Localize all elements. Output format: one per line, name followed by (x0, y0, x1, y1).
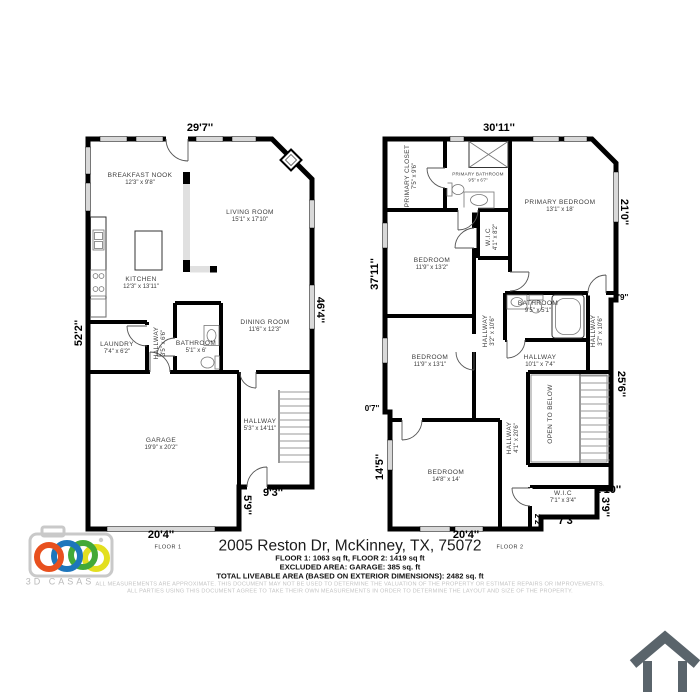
room-label-wic-top: W.I.C 4'1" x 8'2" (485, 224, 501, 250)
floor1-dim-right: 46'4'' (312, 297, 326, 323)
room-label-primary-bathroom: PRIMARY BATHROOM 9'5" x 6'7" (452, 171, 503, 182)
room-size: 3'7" x 10'6" (598, 315, 606, 348)
room-name: W.I.C (485, 224, 493, 250)
floor2-dim-top: 30'11'' (483, 122, 515, 136)
dim-text: 20'4'' (148, 529, 174, 543)
room-size: 4'1" x 20'6" (514, 422, 522, 455)
room-label-laundry: LAUNDRY 7'4" x 6'2" (100, 341, 134, 357)
floor2-dim-right-jog: 0'9'' (614, 293, 629, 303)
floor2-dim-wic-bottom: 7'3'' (558, 515, 578, 529)
floor1-caption: FLOOR 1 (154, 545, 181, 552)
floor2-caption: FLOOR 2 (496, 545, 523, 552)
room-label-primary-closet: PRIMARY CLOSET 7'5" x 9'6" (404, 145, 420, 208)
room-label-bathroom-1: BATHROOM 5'1" x 6' (176, 340, 216, 356)
room-name: HALLWAY (506, 422, 514, 455)
room-name: PRIMARY BEDROOM (525, 199, 596, 207)
room-label-open-to-below: OPEN TO BELOW (547, 384, 555, 444)
room-size: 7'1" x 3'4" (550, 498, 576, 506)
room-size: 11'9" x 13'1" (412, 362, 448, 370)
floor1-dim-left: 52'2'' (73, 320, 87, 346)
room-name: BATHROOM (518, 300, 558, 308)
dim-text: 14'5'' (374, 454, 388, 480)
room-size: 9'5" x 5'1" (518, 308, 558, 316)
room-name: BEDROOM (428, 469, 464, 477)
room-name: HALLWAY (590, 315, 598, 348)
floor1-dim-hall-bottom: 9'3'' (263, 487, 283, 501)
room-size: 13'1" x 18' (525, 207, 596, 215)
room-label-hallway-lower: HALLWAY 4'1" x 20'6" (506, 422, 522, 455)
floor2-dim-right-mid: 25'6'' (613, 371, 627, 397)
room-name: LIVING ROOM (226, 209, 274, 217)
dim-text: 52'2'' (73, 320, 87, 346)
logo-camera-icon (30, 527, 112, 576)
room-name: BREAKFAST NOOK (108, 172, 173, 180)
room-name: KITCHEN (123, 276, 159, 284)
room-name: DINING ROOM (240, 319, 289, 327)
floor1-dim-step: 5'9'' (239, 495, 253, 515)
floor2-dim-left-bottom: 14'5'' (374, 454, 388, 480)
room-name: BATHROOM (176, 340, 216, 348)
floorplan-page: 29'7'' 52'2'' 46'4'' 20'4'' 9'3'' 5'9'' … (0, 0, 700, 700)
room-label-living-room: LIVING ROOM 15'1" x 17'10" (226, 209, 274, 225)
room-label-garage: GARAGE 19'9" x 20'2" (145, 437, 178, 453)
floor1-dim-bottom: 20'4'' (148, 529, 174, 543)
kitchen-island (135, 231, 162, 270)
room-name: OPEN TO BELOW (547, 384, 555, 444)
room-name: HALLWAY (524, 354, 557, 362)
room-name: W.I.C (550, 490, 576, 498)
logo-text: 3D CASAS (26, 576, 95, 587)
room-label-hallway-center: HALLWAY 10'1" x 7'4" (524, 354, 557, 370)
room-label-bedroom-top: BEDROOM 11'9" x 13'2" (414, 257, 450, 273)
room-label-bathroom-2: BATHROOM 9'5" x 5'1" (518, 300, 558, 316)
floor2-dim-left: 37'11'' (369, 258, 383, 290)
dim-text: 5'9'' (239, 495, 253, 515)
room-label-wic-bottom: W.I.C 7'1" x 3'4" (550, 490, 576, 506)
room-size: 7'4" x 6'2" (100, 349, 134, 357)
floor2-dim-left-jog: 0'7'' (365, 404, 380, 414)
logo-text-value: 3D CASAS (26, 576, 95, 587)
caption-text: FLOOR 2 (496, 545, 523, 552)
room-size: 12'3" x 9'8" (108, 180, 173, 188)
room-label-hallway-left: HALLWAY 3'2" x 10'6" (482, 315, 498, 348)
room-size: 15'1" x 17'10" (226, 217, 274, 225)
room-name: BEDROOM (412, 354, 448, 362)
footer-disclaimer-1: ALL MEASUREMENTS ARE APPROXIMATE. THIS D… (95, 582, 604, 589)
dim-text: 1'10'' (595, 484, 621, 498)
room-label-primary-bedroom: PRIMARY BEDROOM 13'1" x 18' (525, 199, 596, 215)
room-size: 3'2" x 10'6" (490, 315, 498, 348)
room-name: BEDROOM (414, 257, 450, 265)
disclaimer-text: ALL PARTIES USING THIS DOCUMENT AGREE TO… (127, 589, 573, 596)
floor2-dim-step: 2'2'' (532, 514, 542, 529)
floor1-dim-top: 29'7'' (187, 122, 213, 136)
footer-disclaimer-2: ALL PARTIES USING THIS DOCUMENT AGREE TO… (127, 589, 573, 596)
room-size: 9'5" x 6'7" (452, 177, 503, 183)
room-name: HALLWAY (244, 418, 277, 426)
room-label-breakfast-nook: BREAKFAST NOOK 12'3" x 9'8" (108, 172, 173, 188)
room-label-hallway-1: HALLWAY 5'3" x 14'11" (244, 418, 277, 434)
room-size: 11'6" x 12'3" (240, 327, 289, 335)
floor2-dim-right-top: 21'0'' (616, 199, 630, 225)
dim-text: 7'3'' (558, 515, 578, 529)
room-name: PRIMARY CLOSET (404, 145, 412, 208)
room-label-dining-room: DINING ROOM 11'6" x 12'3" (240, 319, 289, 335)
caption-text: FLOOR 1 (154, 545, 181, 552)
footer-area-line-3: TOTAL LIVEABLE AREA (BASED ON EXTERIOR D… (216, 571, 483, 580)
room-size: 4'1" x 8'2" (493, 224, 501, 250)
dim-text: 3'9'' (597, 497, 611, 517)
house-outline-icon (633, 637, 697, 692)
room-size: 7'5" x 9'6" (412, 145, 420, 208)
dim-text: 29'7'' (187, 122, 213, 136)
dim-text: 9'3'' (263, 487, 283, 501)
disclaimer-text: ALL MEASUREMENTS ARE APPROXIMATE. THIS D… (95, 582, 604, 589)
floor2-dim-wic-width: 1'10'' (595, 484, 621, 498)
room-name: HALLWAY (153, 327, 161, 360)
room-size: 3'5" x 6'6" (161, 327, 169, 360)
room-name: LAUNDRY (100, 341, 134, 349)
dim-text: 21'0'' (616, 199, 630, 225)
dim-text: 30'11'' (483, 122, 515, 136)
room-size: 19'9" x 20'2" (145, 445, 178, 453)
area-text: TOTAL LIVEABLE AREA (BASED ON EXTERIOR D… (216, 571, 483, 580)
room-name: HALLWAY (482, 315, 490, 348)
room-name: GARAGE (145, 437, 178, 445)
room-size: 11'9" x 13'2" (414, 265, 450, 273)
dim-text: 37'11'' (369, 258, 383, 290)
room-label-kitchen: KITCHEN 12'3" x 13'11" (123, 276, 159, 292)
room-size: 12'3" x 13'11" (123, 284, 159, 292)
room-label-hallway-small: HALLWAY 3'5" x 6'6" (153, 327, 169, 360)
room-size: 14'8" x 14' (428, 477, 464, 485)
room-size: 10'1" x 7'4" (524, 362, 557, 370)
room-size: 5'1" x 6' (176, 348, 216, 356)
room-label-bedroom-mid: BEDROOM 11'9" x 13'1" (412, 354, 448, 370)
dim-text: 0'9'' (614, 293, 629, 303)
room-label-bedroom-bottom: BEDROOM 14'8" x 14' (428, 469, 464, 485)
dim-text: 25'6'' (613, 371, 627, 397)
room-label-hallway-right: HALLWAY 3'7" x 10'6" (590, 315, 606, 348)
room-size: 5'3" x 14'11" (244, 426, 277, 434)
room-name: PRIMARY BATHROOM (452, 171, 503, 177)
dim-text: 46'4'' (312, 297, 326, 323)
floor2-dim-wic-height: 3'9'' (597, 497, 611, 517)
dim-text: 2'2'' (532, 514, 542, 529)
dim-text: 0'7'' (365, 404, 380, 414)
kitchen-counter (91, 217, 107, 317)
